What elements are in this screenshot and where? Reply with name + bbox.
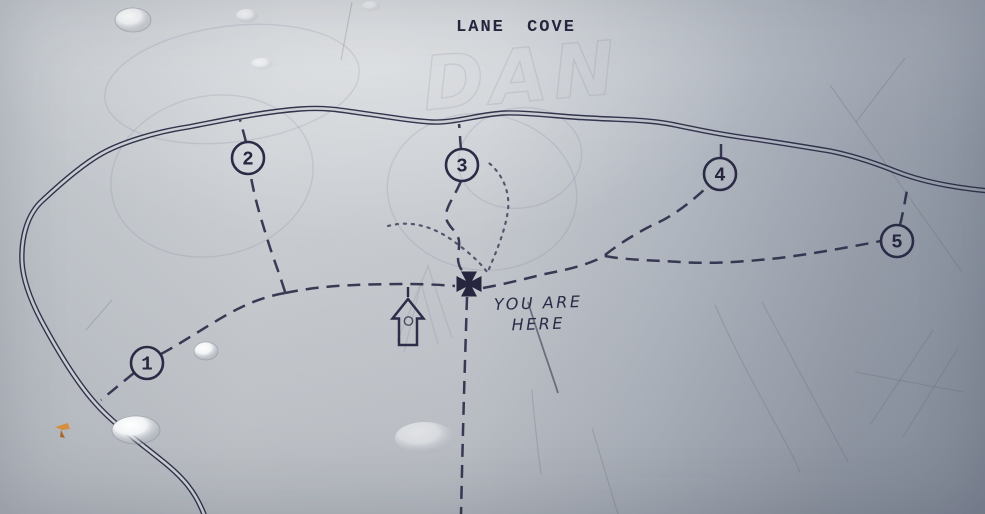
station-3-number: 3 xyxy=(456,156,467,178)
trail-eastjunction-to-station4 xyxy=(605,188,706,255)
station-4: 4 xyxy=(704,158,736,190)
trail-station2-to-road xyxy=(240,120,246,142)
droplet xyxy=(251,58,273,70)
droplet xyxy=(395,422,455,454)
droplet xyxy=(194,342,218,360)
trail-cross-to-south xyxy=(461,297,467,514)
droplet xyxy=(236,9,258,23)
trail-junction-to-station2 xyxy=(251,177,285,292)
you-are-here-label: YOU ARE HERE xyxy=(494,292,584,335)
station-1-number: 1 xyxy=(141,354,152,376)
station-2-number: 2 xyxy=(242,149,253,171)
droplet xyxy=(115,8,151,32)
trail-station1-to-road xyxy=(101,373,134,400)
stations-layer: 12345 xyxy=(131,142,913,379)
station-5-number: 5 xyxy=(891,232,902,254)
trail-eastjunction-to-station5 xyxy=(605,241,881,263)
dotted-loop-north xyxy=(489,163,508,269)
trail-cross-to-east-junction xyxy=(483,256,605,288)
map-sign-photo: DAN xyxy=(0,0,985,514)
graffiti-scribbles: DAN xyxy=(86,2,963,514)
station-5: 5 xyxy=(881,225,913,257)
trail-junction-to-cross xyxy=(285,284,455,293)
map-title: LANE COVE xyxy=(456,18,576,37)
trail-map: DAN xyxy=(0,0,985,514)
trail-station5-to-road xyxy=(900,190,907,225)
you-are-here-line1: YOU ARE xyxy=(494,292,583,314)
trail-station3-to-road xyxy=(459,124,461,149)
station-3: 3 xyxy=(446,149,478,181)
trail-station1-to-junction xyxy=(161,293,285,354)
droplet xyxy=(362,1,380,11)
station-1: 1 xyxy=(131,347,163,379)
maltese-cross-icon xyxy=(457,272,482,297)
station-2: 2 xyxy=(232,142,264,174)
trail-network xyxy=(101,120,907,514)
debris-speck xyxy=(55,423,70,438)
droplet xyxy=(112,416,160,444)
trail-station3-to-cross xyxy=(446,181,465,273)
station-4-number: 4 xyxy=(714,165,725,187)
